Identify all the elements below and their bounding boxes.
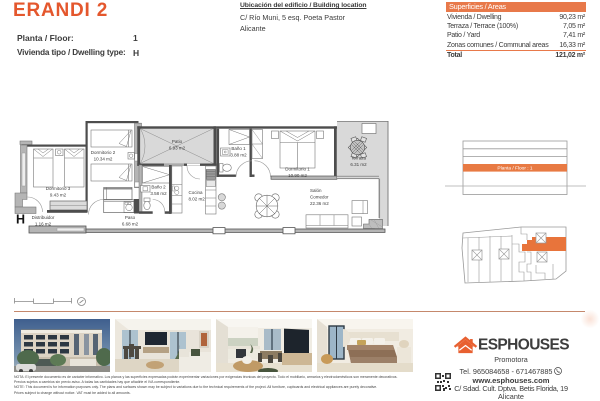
svg-text:Comedor: Comedor — [310, 195, 329, 200]
svg-text:Patio: Patio — [172, 139, 183, 144]
svg-text:Baño 2: Baño 2 — [151, 185, 166, 190]
svg-text:Dormitorio 3: Dormitorio 3 — [46, 186, 71, 191]
svg-text:H: H — [16, 213, 25, 227]
svg-text:6.68 m2: 6.68 m2 — [122, 222, 139, 227]
svg-text:Terraza: Terraza — [351, 156, 367, 161]
svg-text:10.34 m2: 10.34 m2 — [94, 157, 113, 162]
svg-text:Paso: Paso — [125, 215, 136, 220]
svg-text:3.88 m2: 3.88 m2 — [230, 153, 247, 158]
svg-text:Dormitorio 1: Dormitorio 1 — [285, 167, 310, 172]
svg-text:Cocina: Cocina — [189, 190, 204, 195]
svg-text:6.93 m2: 6.93 m2 — [169, 146, 186, 151]
svg-text:3.58 m2: 3.58 m2 — [150, 191, 167, 196]
svg-text:22.36 m2: 22.36 m2 — [310, 201, 329, 206]
svg-text:6.31 m2: 6.31 m2 — [350, 162, 367, 167]
svg-text:9.43 m2: 9.43 m2 — [50, 193, 67, 198]
svg-text:10.90 m2: 10.90 m2 — [288, 173, 307, 178]
svg-text:Salón: Salón — [310, 188, 322, 193]
svg-text:Dormitorio 2: Dormitorio 2 — [91, 150, 116, 155]
svg-text:Baño 1: Baño 1 — [231, 146, 246, 151]
svg-text:Distribuidor: Distribuidor — [32, 215, 55, 220]
svg-text:8.02 m2: 8.02 m2 — [189, 197, 206, 202]
